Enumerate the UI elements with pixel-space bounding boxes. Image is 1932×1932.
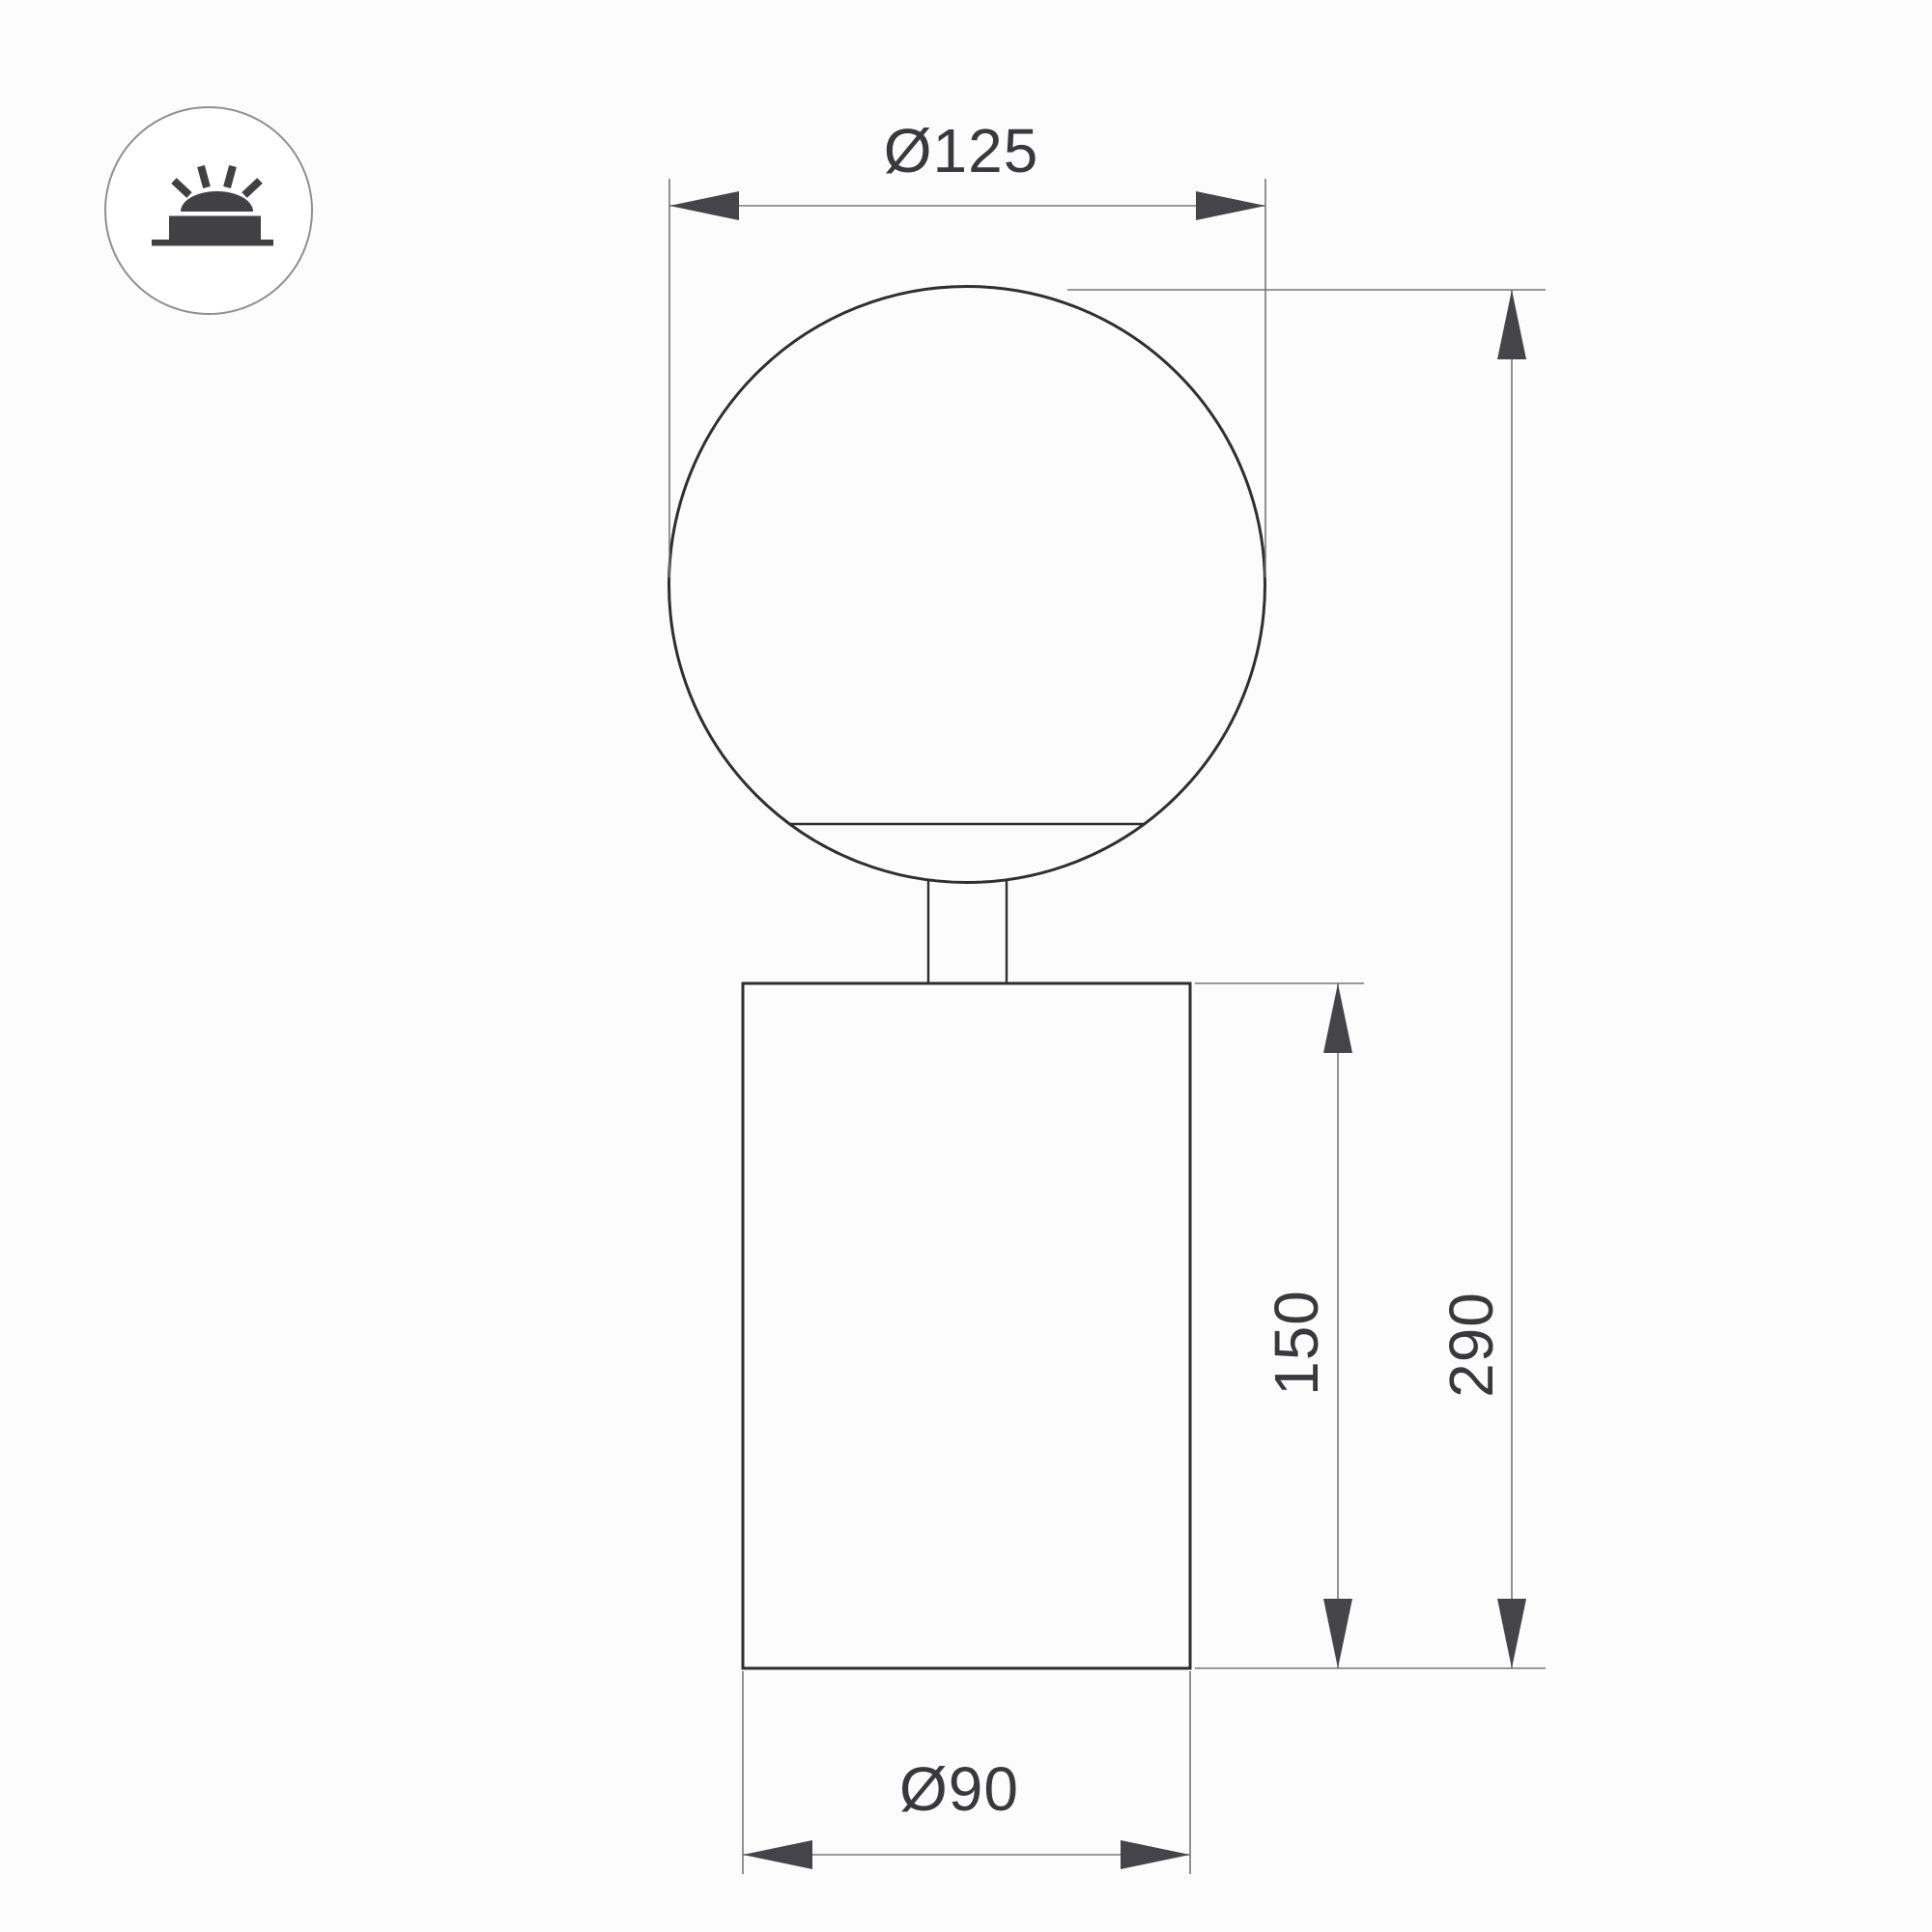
body-cylinder-rect [743, 983, 1190, 1668]
dim-label-globe-diameter: Ø125 [884, 116, 1039, 185]
drawing-canvas: Ø125 290 150 Ø90 [0, 0, 1932, 1932]
arrow-up-icon [1323, 983, 1352, 1053]
surface-mounted-light-icon [105, 107, 312, 314]
arrow-down-icon [1323, 1599, 1352, 1668]
dim-label-body-height: 150 [1262, 1290, 1331, 1396]
arrow-down-icon [1497, 1599, 1526, 1668]
dim-label-body-diameter: Ø90 [899, 1754, 1019, 1824]
icon-mounting-surface-line [152, 240, 273, 246]
arrow-right-icon [1121, 1840, 1190, 1869]
dimension-drawing: Ø125 290 150 Ø90 [0, 0, 1932, 1932]
icon-lamp-base [169, 216, 261, 241]
dim-globe-diameter: Ø125 [669, 116, 1265, 578]
dim-overall-height: 290 [1067, 290, 1546, 1668]
dim-label-overall-height: 290 [1436, 1292, 1506, 1398]
dim-body-diameter: Ø90 [743, 1671, 1190, 1874]
arrow-right-icon [1196, 191, 1265, 220]
arrow-up-icon [1497, 290, 1526, 359]
globe-circle [669, 287, 1265, 883]
dim-body-height: 150 [1195, 983, 1364, 1668]
arrow-left-icon [669, 191, 739, 220]
arrow-left-icon [743, 1840, 812, 1869]
luminaire-outline [669, 287, 1265, 1669]
